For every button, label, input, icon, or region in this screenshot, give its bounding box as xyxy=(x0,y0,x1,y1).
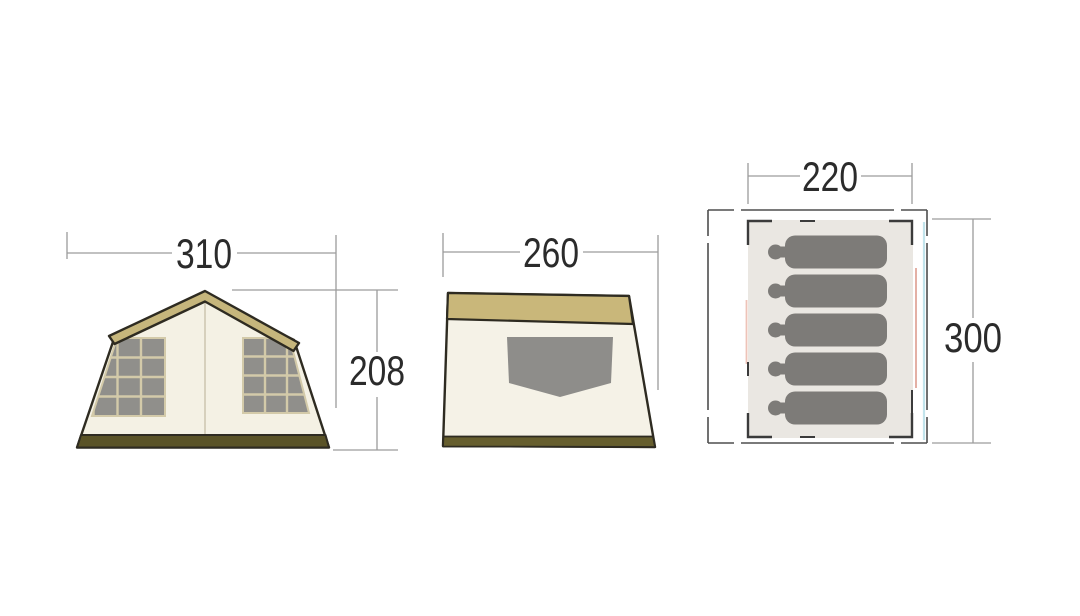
dimension-floor-depth: 300 xyxy=(932,219,1002,443)
front-view xyxy=(77,291,329,448)
floor-depth-value: 300 xyxy=(944,314,1002,361)
floor-plan xyxy=(708,210,927,443)
dimension-floor-width: 220 xyxy=(748,153,912,204)
front-height-value: 208 xyxy=(349,347,405,394)
side-roof-band xyxy=(447,293,633,324)
front-width-value: 310 xyxy=(176,230,232,277)
front-left-window xyxy=(85,336,168,418)
side-view xyxy=(443,293,655,447)
side-skirt xyxy=(443,437,655,448)
diagram-page: 310 208 260 220 xyxy=(0,0,1080,616)
floor-width-value: 220 xyxy=(802,153,858,200)
diagram-svg: 310 208 260 220 xyxy=(0,0,1080,616)
front-skirt xyxy=(77,435,329,448)
side-depth-value: 260 xyxy=(523,229,579,276)
